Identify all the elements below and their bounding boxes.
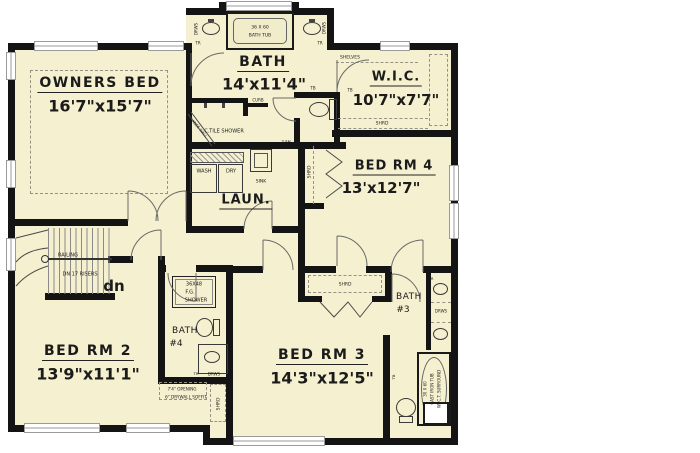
toilet-bath4-bowl bbox=[196, 318, 213, 337]
stair-railing bbox=[46, 258, 112, 260]
wic-shelf-line bbox=[336, 62, 418, 63]
tb-bath3: TB bbox=[392, 375, 396, 380]
tb-2: TB bbox=[347, 88, 352, 93]
dn-label: dn bbox=[103, 277, 124, 295]
wall-segment bbox=[186, 50, 192, 88]
sink-bath4 bbox=[204, 351, 220, 363]
bath3-line2: #3 bbox=[396, 305, 409, 315]
wic-organizer bbox=[429, 54, 448, 126]
shower-valve-1 bbox=[204, 103, 207, 108]
tr-bath4: TR bbox=[194, 372, 199, 376]
wall-segment bbox=[15, 219, 128, 226]
wall-segment bbox=[248, 103, 268, 107]
dry: DRY bbox=[226, 168, 236, 174]
bath-dims: 14'x11'4" bbox=[222, 75, 306, 94]
window bbox=[226, 1, 292, 11]
laundry-sink-basin bbox=[254, 153, 268, 168]
wall-segment bbox=[423, 266, 458, 273]
wall-segment bbox=[332, 130, 458, 137]
sink-bath3-top bbox=[433, 283, 448, 295]
drws-bath4: DRWS bbox=[208, 372, 220, 377]
bath-name: BATH bbox=[237, 54, 289, 72]
wall-segment bbox=[192, 98, 248, 103]
fg-shower-1: 36X48 bbox=[186, 281, 202, 287]
wall-segment bbox=[158, 265, 166, 272]
wall-segment bbox=[451, 43, 458, 445]
bedrm4-dims: 13'x12'7" bbox=[342, 179, 421, 197]
wall-segment bbox=[298, 203, 324, 209]
sink-master-right bbox=[303, 22, 321, 35]
window bbox=[34, 41, 98, 51]
bedrm2-dims: 13'9"x11'1" bbox=[36, 365, 140, 384]
window bbox=[6, 52, 16, 80]
wall-segment bbox=[186, 226, 244, 233]
bath4-line2: #4 bbox=[169, 339, 182, 349]
drws-master-right: DRWS bbox=[322, 22, 327, 34]
tr-master-left: TR bbox=[195, 41, 200, 46]
fg-shower-2: F.G. bbox=[185, 289, 194, 295]
window bbox=[6, 238, 16, 271]
fg-shower-3: SHOWER bbox=[185, 297, 207, 303]
floor-plan-canvas: OWNERS BED16'7"x15'7"BATH14'x11'4"W.I.C.… bbox=[0, 0, 700, 453]
bedrm2-name: BED RM 2 bbox=[42, 343, 134, 361]
laundry-counter-hatch bbox=[190, 152, 244, 163]
opening-note-1: 7'4" OPENING bbox=[167, 387, 196, 392]
wall-segment bbox=[158, 256, 165, 384]
dn-risers: DN 17 RISERS bbox=[62, 271, 97, 277]
window bbox=[233, 436, 325, 446]
owners-bed-dims: 16'7"x15'7" bbox=[48, 97, 152, 116]
bedrm4-name: BED RM 4 bbox=[353, 159, 436, 176]
window bbox=[449, 165, 459, 201]
owners-bed-name: OWNERS BED bbox=[37, 75, 162, 93]
window bbox=[449, 203, 459, 239]
sink-master-left bbox=[202, 22, 220, 35]
drws-master-left: DRWS bbox=[194, 23, 199, 35]
wash: WASH bbox=[196, 168, 211, 174]
laun-name: LAUN. bbox=[219, 193, 272, 210]
bath3-line1: BATH bbox=[396, 292, 422, 302]
faucet-master-right bbox=[309, 19, 315, 22]
sink-bath3-bottom bbox=[433, 328, 448, 340]
shower-valve-2 bbox=[222, 103, 225, 108]
shrd-wic: SHRD bbox=[376, 120, 389, 125]
wall-segment bbox=[302, 296, 322, 302]
railing: RAILING bbox=[58, 252, 78, 258]
window bbox=[380, 41, 410, 51]
toilet-master-tank bbox=[329, 99, 337, 120]
bedrm4-closet-rod bbox=[313, 146, 314, 204]
window bbox=[24, 423, 100, 433]
cast-tub-2: CAST IRON TUB bbox=[430, 373, 435, 404]
shrd-bedrm3-closet: SHRD bbox=[339, 281, 352, 286]
opening-note-2: 6" DRYWALL SOFFIT bbox=[165, 395, 207, 400]
wic-rod-line-1 bbox=[338, 118, 428, 119]
laun-sink: SINK bbox=[256, 178, 267, 183]
drws-bath3: DRWS bbox=[435, 309, 447, 314]
wall-segment bbox=[233, 266, 263, 273]
cast-tub-3: W/ C.T. SURROUND bbox=[437, 370, 442, 408]
toilet-bath4-tank bbox=[213, 319, 220, 336]
three-sh: 3 SH bbox=[281, 140, 290, 145]
wall-segment bbox=[385, 273, 392, 302]
wic-name: W.I.C. bbox=[370, 70, 422, 87]
toilet-master-bowl bbox=[309, 102, 329, 117]
ctile-shower: C.TILE SHOWER bbox=[204, 128, 244, 134]
wall-segment bbox=[383, 335, 390, 438]
shrd-bedrm4-closet: SHRD bbox=[306, 166, 311, 179]
wic-rod-line-2 bbox=[338, 128, 428, 129]
tr-master-right: TR bbox=[317, 41, 322, 46]
window bbox=[6, 160, 16, 188]
bedrm3-name: BED RM 3 bbox=[276, 347, 368, 365]
wall-segment bbox=[298, 266, 305, 302]
wall-segment bbox=[243, 98, 248, 116]
wall-segment bbox=[426, 273, 431, 350]
master-tub-name: BATH TUB bbox=[249, 32, 272, 37]
window bbox=[148, 41, 184, 51]
bath3-vanity-dash-1 bbox=[431, 302, 451, 303]
toilet-bath3-tank bbox=[399, 416, 413, 423]
stair-newel bbox=[41, 255, 49, 263]
cast-tub-1: 30 X 60 bbox=[423, 381, 428, 396]
wall-segment bbox=[366, 266, 392, 273]
window bbox=[126, 423, 170, 433]
master-tub-size: 36 X 60 bbox=[251, 24, 268, 29]
toilet-bath3-bowl bbox=[396, 398, 416, 417]
shrd-bath4-closet: SHRD bbox=[215, 398, 220, 411]
bath3-vanity-dash-2 bbox=[431, 322, 451, 323]
shelves: SHELVES bbox=[340, 54, 360, 59]
tb-1: TB bbox=[310, 86, 315, 91]
bedrm3-dims: 14'3"x12'5" bbox=[270, 369, 374, 388]
master-bathtub-inner bbox=[233, 18, 287, 44]
curb: CURB bbox=[252, 98, 263, 103]
tr-bath3: TR bbox=[429, 277, 434, 281]
wic-dims: 10'7"x7'7" bbox=[353, 91, 440, 109]
bath4-line1: BATH bbox=[172, 326, 198, 336]
wall-segment bbox=[186, 142, 346, 149]
faucet-master-left bbox=[208, 19, 214, 22]
